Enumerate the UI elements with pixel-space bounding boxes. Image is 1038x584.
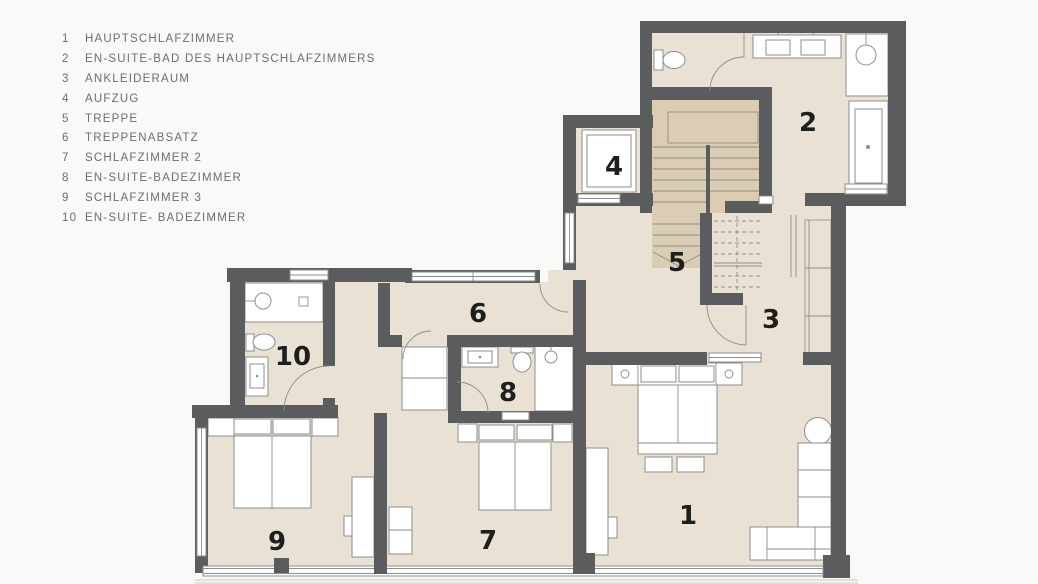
door-slider (578, 194, 620, 203)
room-number-10: 10 (275, 342, 311, 372)
round-table-icon (805, 418, 832, 445)
window (197, 428, 206, 556)
floor-plan-page: 1HAUPTSCHLAFZIMMER 2EN-SUITE-BAD DES HAU… (0, 0, 1038, 584)
room-number-6: 6 (469, 299, 487, 329)
window (290, 270, 328, 280)
closet-icon (389, 507, 412, 554)
toilet-icon (654, 50, 685, 70)
room-number-4: 4 (605, 152, 623, 182)
shower-icon (535, 345, 573, 411)
window (565, 213, 574, 263)
shower-icon (245, 283, 323, 322)
room-number-9: 9 (268, 527, 286, 557)
room-number-8: 8 (499, 378, 517, 408)
window (845, 184, 887, 194)
room-number-1: 1 (679, 501, 697, 531)
floor-plan-drawing: 1 2 3 4 5 6 7 8 9 10 (0, 0, 1038, 584)
window (412, 272, 535, 281)
sink-vanity-icon (246, 357, 268, 396)
door-slider (709, 353, 761, 362)
window (203, 566, 823, 576)
shower-icon (846, 34, 888, 96)
room-number-7: 7 (479, 526, 497, 556)
wardrobe-icon (805, 220, 831, 361)
room-number-2: 2 (799, 108, 817, 138)
door-slider (759, 196, 773, 204)
room-number-5: 5 (668, 248, 686, 278)
bathtub-icon (849, 101, 888, 191)
toilet-icon (246, 334, 275, 351)
closet-icon (402, 347, 447, 410)
room-number-3: 3 (762, 305, 780, 335)
door-slider (502, 412, 529, 420)
